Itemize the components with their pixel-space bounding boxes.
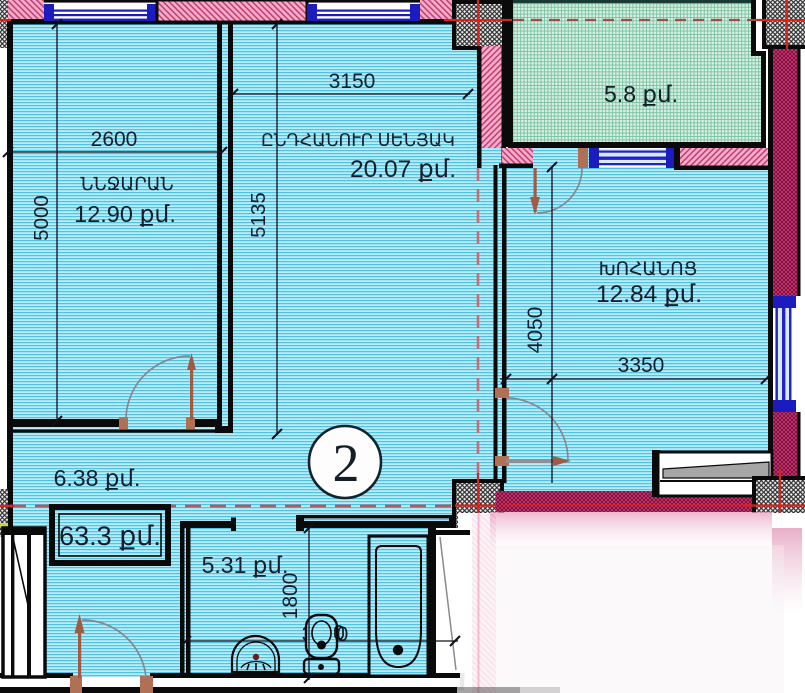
svg-text:2: 2 xyxy=(333,433,360,493)
svg-text:2600: 2600 xyxy=(91,128,138,151)
svg-text:1800: 1800 xyxy=(279,573,302,620)
svg-text:12.84 քմ.: 12.84 քմ. xyxy=(596,281,702,308)
svg-text:5.8 քմ.: 5.8 քմ. xyxy=(604,81,678,107)
svg-text:12.90 քմ.: 12.90 քմ. xyxy=(74,201,176,227)
svg-text:3350: 3350 xyxy=(618,354,665,377)
svg-text:6.38 քմ.: 6.38 քմ. xyxy=(54,465,141,491)
svg-text:4050: 4050 xyxy=(524,307,547,354)
svg-text:63.3 քմ.: 63.3 քմ. xyxy=(59,521,161,551)
svg-text:ԸՆԴՀԱՆՈՒՐ ՍԵՆՅԱԿ: ԸՆԴՀԱՆՈՒՐ ՍԵՆՅԱԿ xyxy=(261,130,455,150)
svg-text:ԽՈՀԱՆՈՑ: ԽՈՀԱՆՈՑ xyxy=(599,258,698,279)
svg-text:20.07 քմ.: 20.07 քմ. xyxy=(350,156,456,183)
svg-text:ՆՆՋԱՐԱՆ: ՆՆՋԱՐԱՆ xyxy=(80,174,173,194)
svg-text:3150: 3150 xyxy=(329,70,376,93)
svg-text:5.31 քմ.: 5.31 քմ. xyxy=(202,552,289,578)
svg-text:5135: 5135 xyxy=(247,192,270,238)
svg-text:5000: 5000 xyxy=(30,195,53,241)
